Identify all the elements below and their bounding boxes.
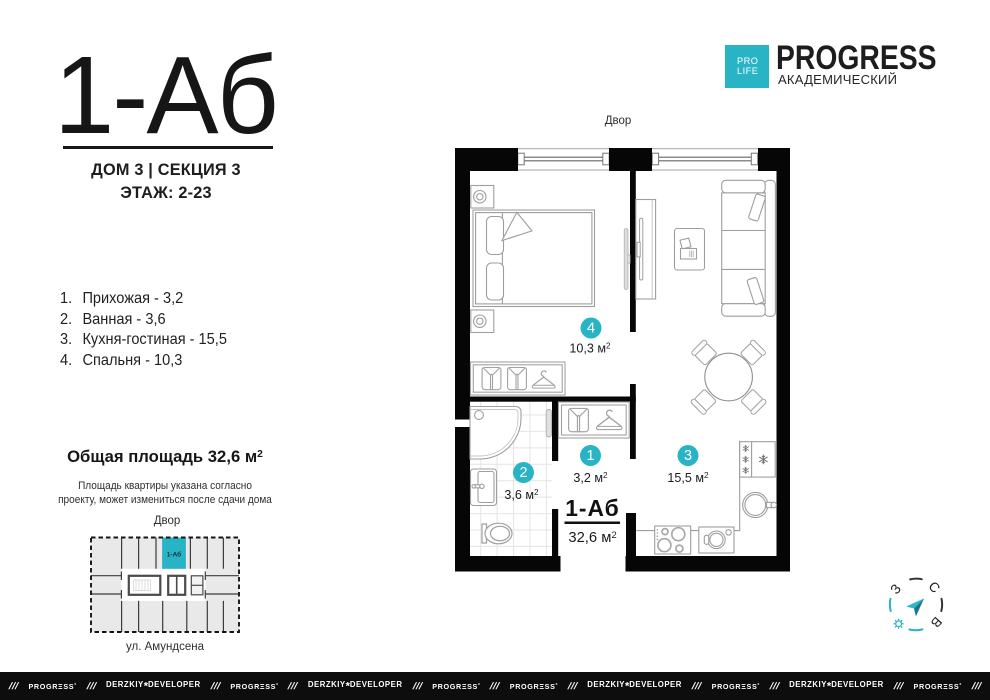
svg-text:1: 1	[586, 448, 594, 464]
svg-text:С: С	[926, 579, 944, 597]
svg-text:3,6 м2: 3,6 м2	[504, 488, 539, 502]
svg-text:15,5 м2: 15,5 м2	[667, 471, 709, 485]
svg-text:32,6 м2: 32,6 м2	[568, 529, 616, 546]
svg-text:1-Аб: 1-Аб	[167, 551, 181, 559]
svg-text:В: В	[928, 614, 945, 631]
svg-text:3: 3	[684, 448, 692, 464]
svg-text:3,2 м2: 3,2 м2	[573, 471, 608, 485]
svg-text:10,3 м2: 10,3 м2	[569, 342, 611, 356]
svg-text:1-Аб: 1-Аб	[565, 495, 620, 521]
svg-text:З: З	[887, 581, 904, 597]
svg-text:4: 4	[587, 321, 595, 337]
svg-text:2: 2	[519, 465, 527, 481]
